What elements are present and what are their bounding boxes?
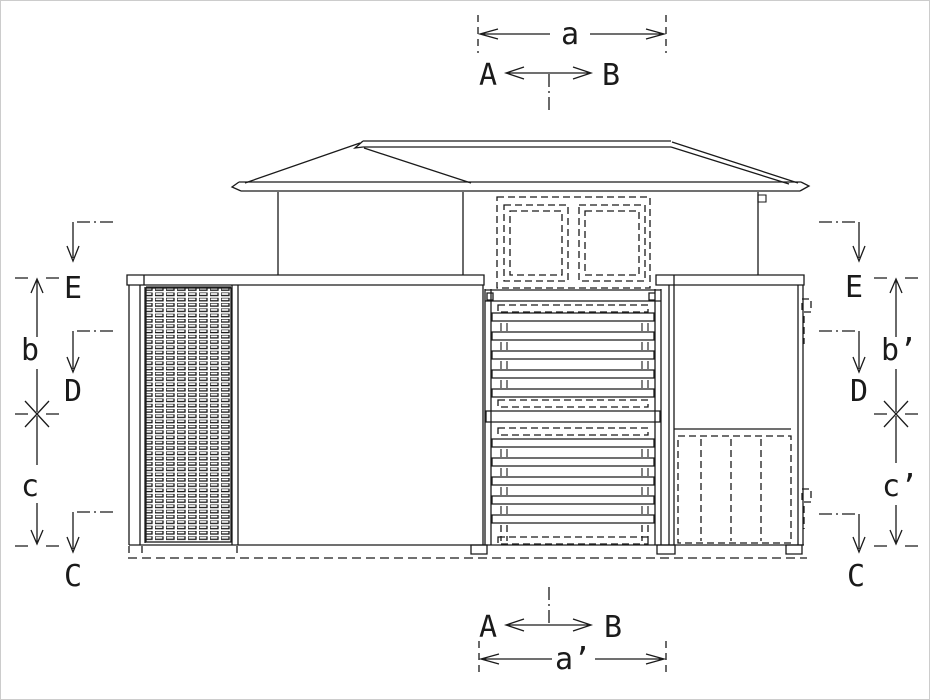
louver-slats-upper: [492, 313, 654, 397]
section-arrow-ab-bottom: A B: [479, 587, 622, 645]
dimensions-right: b’ c’: [874, 278, 918, 546]
post-bracket: [758, 195, 766, 202]
right-cabinet: [656, 275, 811, 545]
dim-a-label: a: [561, 17, 579, 52]
section-a-label-top: A: [479, 58, 497, 93]
cut-left-dashdot-lines: [77, 222, 113, 512]
cut-c-label-left: C: [64, 559, 82, 594]
access-panel-hidden: [678, 436, 791, 543]
section-arrow-ab-top: A B: [479, 58, 620, 111]
technical-drawing-canvas: a A B E D C b c E D C b’ c’: [0, 0, 930, 700]
cut-e-label-right: E: [845, 270, 863, 305]
dimension-a-top: a: [478, 15, 666, 53]
dimensions-left: b c: [15, 278, 59, 546]
dim-b-label: b: [21, 333, 39, 368]
roof-ridge: [355, 141, 671, 148]
intake-grille: [146, 288, 231, 542]
dim-c-label: c: [21, 469, 39, 504]
cut-d-label-right: D: [850, 374, 868, 409]
section-b-label-top: B: [602, 58, 620, 93]
condenser-left-cell-dashed: [504, 205, 568, 281]
section-b-label-bottom: B: [604, 610, 622, 645]
condenser-hidden-outline: [497, 197, 650, 288]
cut-right-dashdot-lines: [819, 222, 855, 514]
right-top-cap: [656, 275, 804, 285]
louver-trays-dashed: [498, 305, 648, 544]
left-top-cap: [127, 275, 484, 285]
dim-b-prime-label: b’: [881, 333, 917, 368]
mounting-feet: [471, 545, 802, 554]
dimension-a-prime-bottom: a’: [479, 641, 666, 677]
dim-right-lines-arrows: [884, 279, 908, 544]
weather-roof: [232, 141, 809, 275]
right-edge-lines: [669, 285, 803, 545]
section-a-label-bottom: A: [479, 610, 497, 645]
base: [128, 545, 807, 558]
louver-frame: [485, 289, 661, 545]
left-edge-lines: [129, 285, 140, 545]
cut-markers-right: E D C: [819, 222, 868, 594]
cut-e-label-left: E: [64, 271, 82, 306]
dim-c-prime-label: c’: [882, 469, 918, 504]
dim-left-lines-arrows: [25, 279, 49, 544]
cut-c-label-right: C: [847, 559, 865, 594]
cut-d-label-left: D: [64, 374, 82, 409]
left-cabinet: [127, 275, 484, 545]
cut-markers-left: E D C: [64, 222, 113, 594]
roof-hip-lines: [245, 142, 798, 184]
roof-fascia: [232, 182, 809, 191]
condenser-right-cell-dashed: [579, 205, 645, 281]
elevation-drawing: a A B E D C b c E D C b’ c’: [1, 1, 930, 700]
base-corner-hidden: [129, 546, 237, 557]
louver-slats-lower: [492, 439, 654, 523]
fan-louver-section: [485, 289, 661, 545]
dim-a-prime-label: a’: [555, 642, 591, 677]
